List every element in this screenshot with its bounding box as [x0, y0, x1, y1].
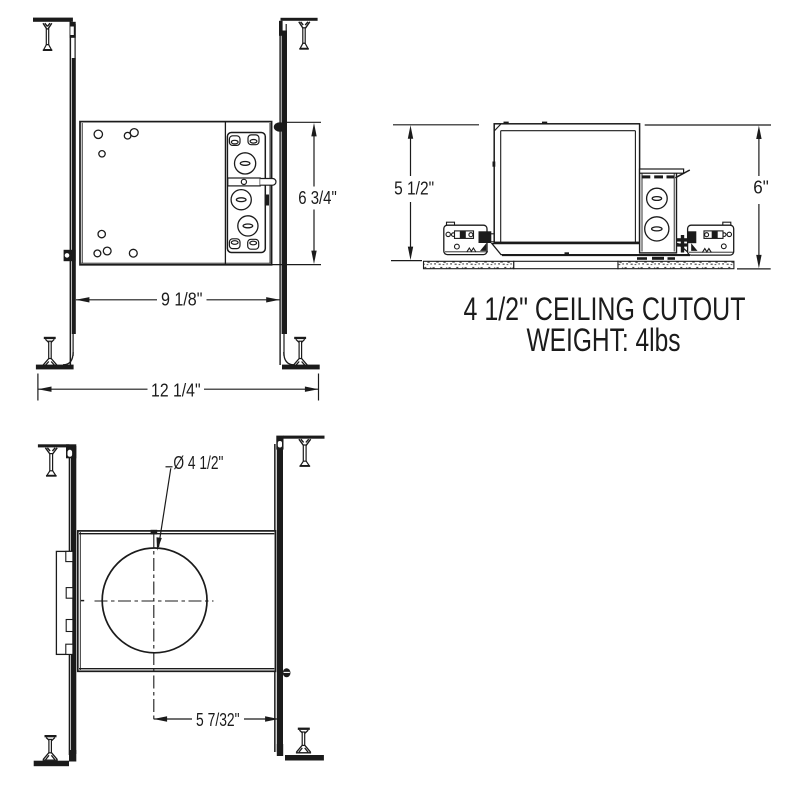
- svg-text:5 1/2": 5 1/2": [394, 178, 434, 198]
- svg-text:9 1/8": 9 1/8": [161, 289, 203, 309]
- svg-text:Ø 4 1/2": Ø 4 1/2": [173, 453, 223, 473]
- svg-text:6 3/4": 6 3/4": [298, 188, 337, 208]
- svg-text:5 7/32": 5 7/32": [196, 710, 240, 730]
- svg-text:6": 6": [753, 178, 769, 198]
- svg-text:12 1/4": 12 1/4": [151, 380, 201, 400]
- svg-text:WEIGHT: 4lbs: WEIGHT: 4lbs: [527, 322, 681, 358]
